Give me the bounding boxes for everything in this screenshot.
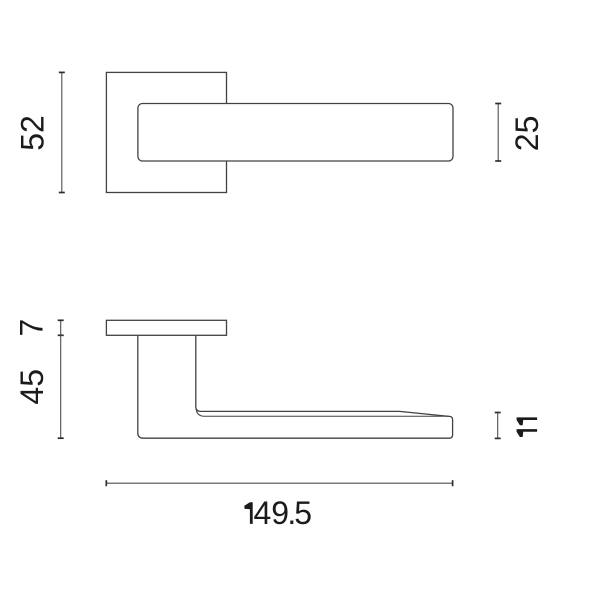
- svg-text:49.5: 49.5: [254, 495, 313, 531]
- svg-text:45: 45: [14, 369, 50, 405]
- svg-text:52: 52: [15, 115, 51, 151]
- svg-text:25: 25: [509, 116, 545, 152]
- svg-text:7: 7: [13, 319, 49, 337]
